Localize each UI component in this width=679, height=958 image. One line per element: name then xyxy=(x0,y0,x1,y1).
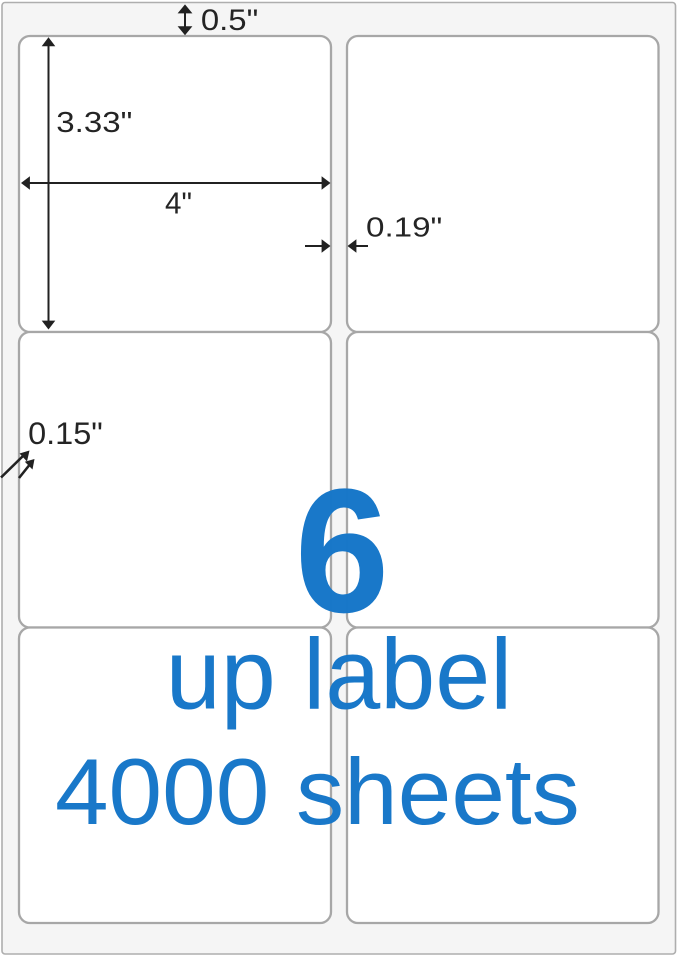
svg-text:up label: up label xyxy=(166,619,512,731)
svg-text:3.33": 3.33" xyxy=(56,106,132,138)
svg-text:4000 sheets: 4000 sheets xyxy=(55,740,580,845)
svg-text:4": 4" xyxy=(165,187,192,221)
svg-text:0.5": 0.5" xyxy=(201,4,258,37)
svg-text:0.19": 0.19" xyxy=(366,212,442,243)
svg-text:0.15": 0.15" xyxy=(28,415,103,451)
